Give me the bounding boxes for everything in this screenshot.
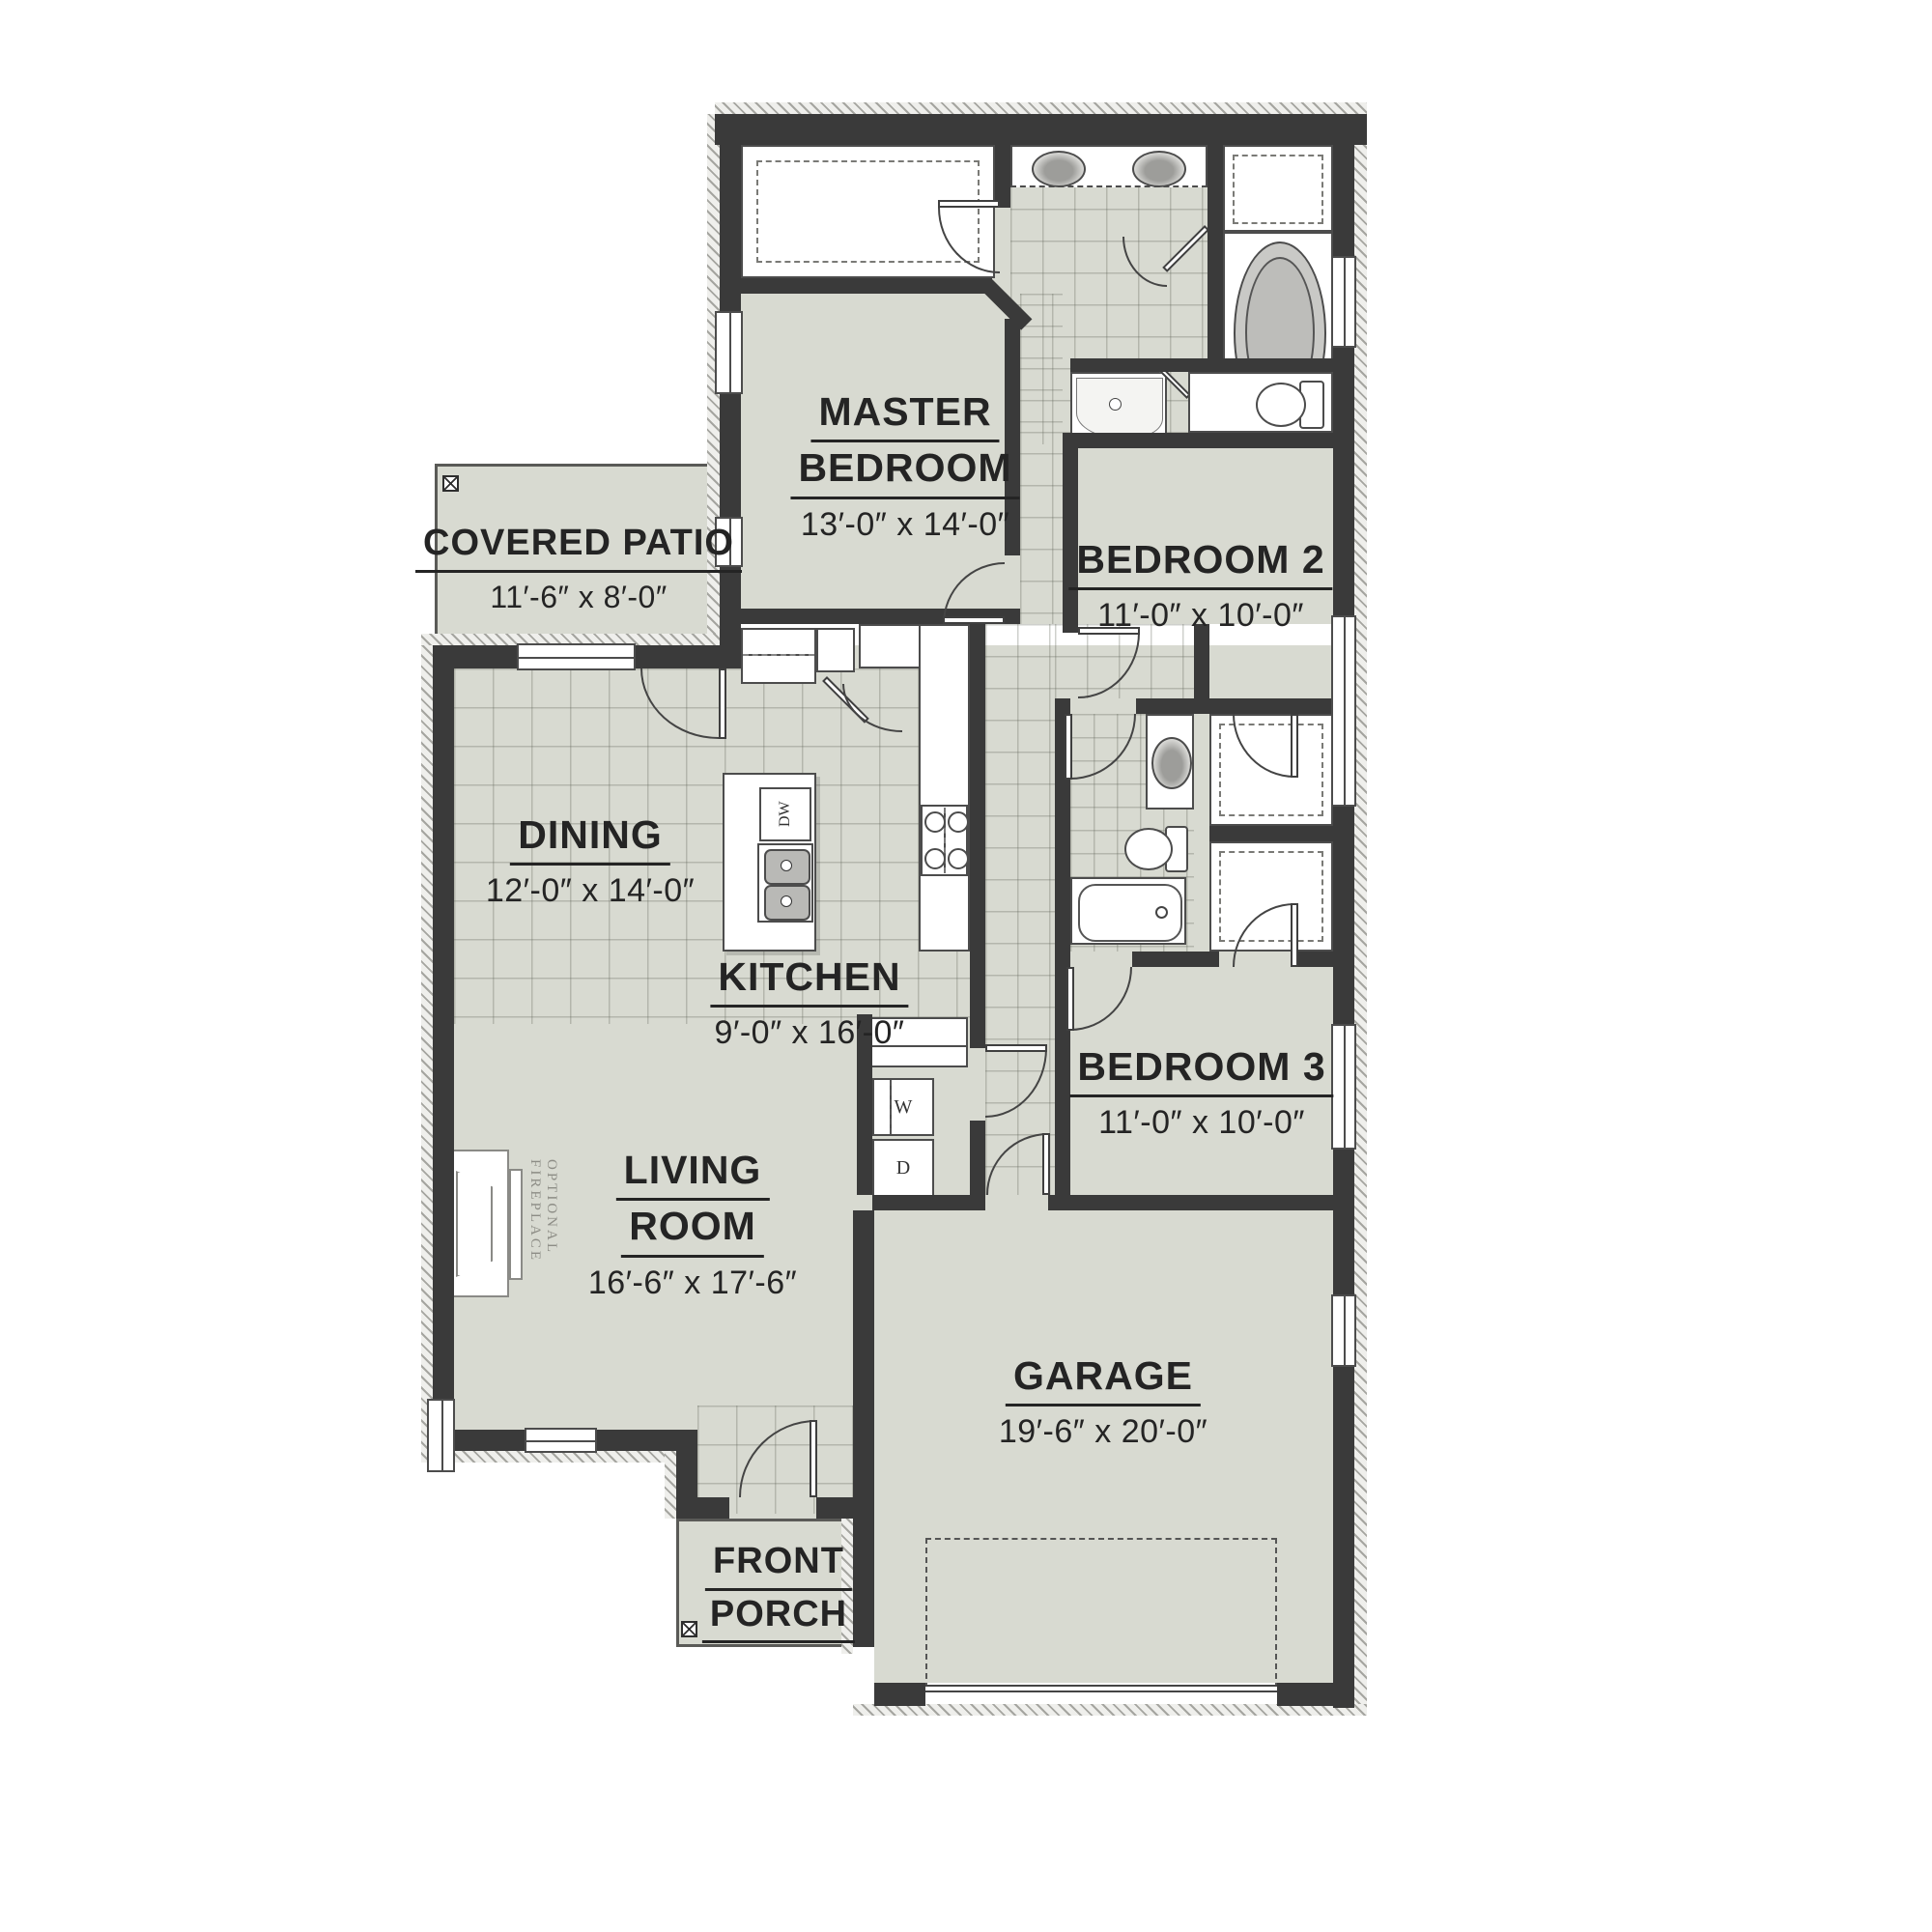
exterior-wall [1277, 1683, 1333, 1706]
bedroom3-dims: 11′-0″ x 10′-0″ [1069, 1097, 1333, 1142]
label-covered-patio: COVERED PATIO 11′-6″ x 8′-0″ [415, 520, 742, 615]
interior-wall [1055, 952, 1070, 967]
interior-wall [1055, 698, 1070, 714]
burner-icon [948, 848, 969, 869]
window-slider [517, 643, 636, 670]
door-bedroom3 [1066, 967, 1074, 1031]
tile-corridor [1020, 294, 1063, 624]
dining-dims: 12′-0″ x 14′-0″ [486, 866, 695, 910]
interior-wall [995, 145, 1010, 208]
shower-drain-icon [1109, 398, 1122, 411]
toilet-bowl-icon [1256, 383, 1306, 427]
interior-wall [720, 278, 992, 294]
door-hall-bath [1065, 714, 1072, 780]
door-front-entry [810, 1420, 817, 1497]
washer-label: W [872, 1078, 934, 1136]
label-master-bedroom: MASTER BEDROOM 13′-0″ x 14′-0″ [790, 386, 1019, 544]
window [1331, 1024, 1356, 1150]
garage-name: GARAGE [1006, 1350, 1201, 1406]
ext-hatch [1354, 114, 1367, 1708]
door-closet-bedroom2 [1291, 714, 1298, 778]
bedroom2-dims: 11′-0″ x 10′-0″ [1068, 590, 1332, 635]
interior-wall [1194, 624, 1209, 714]
label-kitchen: KITCHEN 9′-0″ x 16′-0″ [710, 952, 908, 1052]
floor-plan-canvas: DW W D OPTIONAL FIREPLACE [0, 0, 1932, 1932]
label-bedroom3: BEDROOM 3 11′-0″ x 10′-0″ [1069, 1041, 1333, 1142]
island-sink-drain2 [781, 895, 792, 907]
dishwasher-label: DW [759, 787, 811, 841]
exterior-wall [433, 668, 454, 1451]
hallbath-sink-icon [1151, 737, 1192, 789]
window [525, 1428, 597, 1453]
column-marker-icon [681, 1621, 697, 1637]
kitchen-dims: 9′-0″ x 16′-0″ [710, 1008, 908, 1052]
door-master-bedroom [943, 616, 1005, 624]
island-sink-drain1 [781, 860, 792, 871]
door-closet-bedroom3 [1291, 903, 1298, 967]
kitchen-name: KITCHEN [710, 952, 908, 1008]
window [1331, 615, 1356, 807]
burner-icon [924, 848, 946, 869]
exterior-wall [853, 1210, 874, 1647]
interior-wall [1207, 145, 1223, 358]
bath-linen-shelf [1233, 155, 1323, 224]
interior-wall [1132, 952, 1219, 967]
garage-door [925, 1685, 1277, 1692]
ext-hatch [665, 1451, 676, 1519]
kitchen-counter-top [859, 624, 921, 668]
fireplace-firebox [456, 1171, 493, 1277]
garage-door-travel [925, 1538, 1277, 1689]
label-living-room: LIVING ROOM 16′-6″ x 17′-6″ [588, 1145, 797, 1302]
label-bedroom2: BEDROOM 2 11′-0″ x 10′-0″ [1068, 534, 1332, 635]
master-name-1: MASTER [810, 386, 999, 442]
door-laundry [985, 1044, 1047, 1052]
label-garage: GARAGE 19′-6″ x 20′-0″ [999, 1350, 1207, 1451]
living-name-2: ROOM [621, 1201, 764, 1257]
door-master-closet [938, 200, 1000, 208]
interior-wall [970, 624, 985, 1048]
window [715, 311, 743, 394]
interior-wall [1209, 826, 1333, 841]
fireplace-note: OPTIONAL FIREPLACE [526, 1159, 559, 1299]
door-patio [719, 668, 726, 739]
master-name-2: BEDROOM [790, 442, 1019, 498]
cabinet-2 [816, 628, 855, 672]
patio-dims: 11′-6″ x 8′-0″ [415, 573, 742, 615]
fireplace-hearth [509, 1169, 523, 1280]
master-dims: 13′-0″ x 14′-0″ [790, 499, 1019, 544]
living-dims: 16′-6″ x 17′-6″ [588, 1258, 797, 1302]
label-dining: DINING 12′-0″ x 14′-0″ [486, 810, 695, 910]
exterior-wall [697, 1497, 729, 1519]
interior-wall [1070, 358, 1333, 372]
patio-name: COVERED PATIO [415, 520, 742, 573]
exterior-wall [1333, 114, 1354, 1708]
cabinet-1-line [743, 654, 814, 656]
window [427, 1399, 455, 1472]
label-front-porch: FRONT PORCH [702, 1538, 855, 1643]
hallbath-toilet-bowl [1124, 828, 1173, 870]
exterior-wall [715, 114, 1367, 145]
interior-wall [970, 1121, 985, 1195]
living-name-1: LIVING [616, 1145, 770, 1201]
interior-wall [1294, 952, 1333, 967]
dining-name: DINING [510, 810, 670, 866]
porch-name-2: PORCH [702, 1591, 855, 1644]
window [1331, 256, 1356, 348]
dryer-label: D [872, 1139, 934, 1197]
burner-icon [948, 811, 969, 833]
exterior-wall [874, 1683, 925, 1706]
vanity-sink-icon [1132, 151, 1186, 187]
interior-wall [1048, 1195, 1333, 1210]
vanity-sink-icon [1032, 151, 1086, 187]
column-marker-icon [442, 475, 459, 492]
interior-wall [872, 1195, 985, 1210]
interior-wall [1063, 433, 1333, 448]
cabinet-1 [741, 628, 816, 684]
burner-icon [924, 811, 946, 833]
exterior-wall [676, 1451, 697, 1519]
door-garage-entry [1042, 1133, 1050, 1195]
bedroom3-name: BEDROOM 3 [1069, 1041, 1333, 1097]
window [1331, 1294, 1356, 1367]
interior-wall [1136, 698, 1333, 714]
hallbath-tub-drain [1155, 906, 1168, 919]
kitchen-counter-right [919, 624, 970, 952]
porch-name-1: FRONT [705, 1538, 852, 1591]
washer-dash [890, 1080, 892, 1134]
garage-dims: 19′-6″ x 20′-0″ [999, 1406, 1207, 1451]
bedroom2-name: BEDROOM 2 [1068, 534, 1332, 590]
